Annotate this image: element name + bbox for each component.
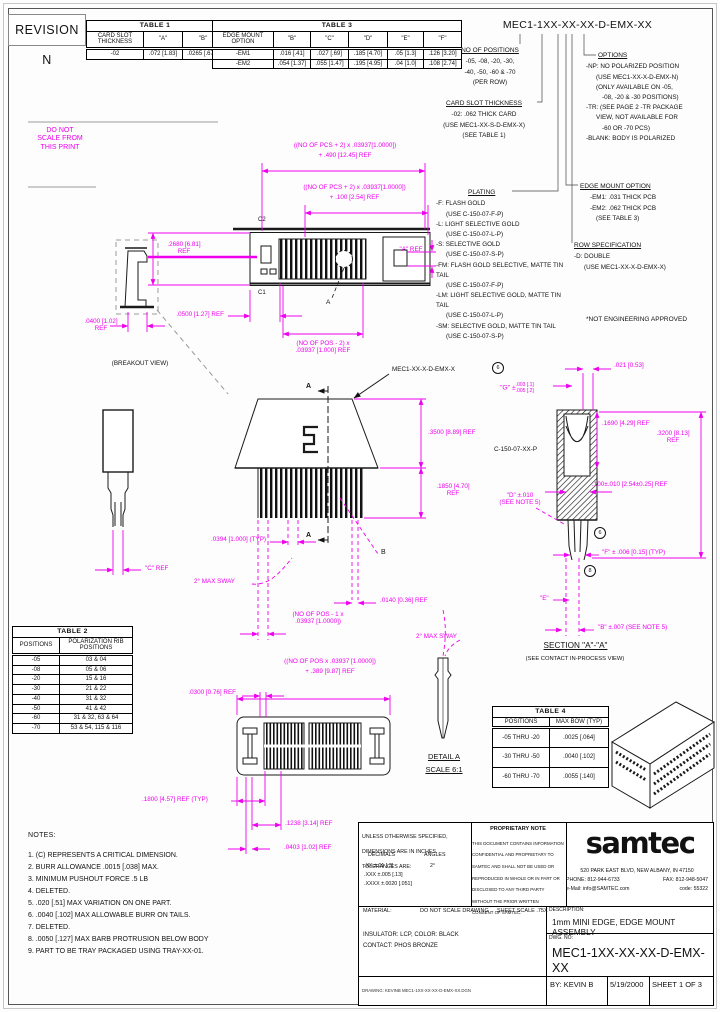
dim-a-ref: "A" REF bbox=[392, 246, 430, 253]
description-label: DESCRIPTION: bbox=[549, 908, 585, 914]
description-value: 1mm MINI EDGE, EDGE MOUNT ASSEMBLY bbox=[552, 918, 710, 937]
do-not-scale-drawing-label: DO NOT SCALE DRAWING bbox=[420, 908, 489, 914]
tolerance-angle: 2° bbox=[430, 863, 435, 869]
dim-top-length2-line2: + .100 [2.54] REF bbox=[272, 194, 437, 201]
samtec-logo: samtec bbox=[575, 826, 705, 860]
notes-block: NOTES: 1. (C) REPRESENTS A CRITICAL DIME… bbox=[28, 830, 263, 958]
note-item: 3. MINIMUM PUSHOUT FORCE .5 LB bbox=[28, 874, 263, 886]
dim-0140: .0140 [0.36] REF bbox=[380, 597, 452, 604]
not-engineering-approved-note: *NOT ENGINEERING APPROVED bbox=[586, 316, 716, 324]
dwg-no-value: MEC1-1XX-XX-XX-D-EMX-XX bbox=[552, 946, 710, 976]
table-2: TABLE 2 POSITIONS POLARIZATION RIB POSIT… bbox=[12, 626, 133, 734]
note-item: 7. DELETED. bbox=[28, 922, 263, 934]
note-balloon-3: 8 bbox=[584, 565, 596, 577]
contact-material: CONTACT: PHOS BRONZE bbox=[363, 943, 438, 950]
insulator-material: INSULATOR: LCP, COLOR: BLACK bbox=[363, 932, 459, 939]
dim-2680: .2680 [6.81] REF bbox=[158, 241, 210, 256]
spec-row-specification: ROW SPECIFICATION -D: DOUBLE (USE MEC1-X… bbox=[574, 241, 714, 273]
section-aa-subtitle: (SEE CONTACT IN-PROCESS VIEW) bbox=[505, 656, 645, 663]
section-arrow-a-top: A bbox=[306, 383, 318, 391]
dim-3200: .3200 [8.13] REF bbox=[646, 430, 700, 445]
drawing-sheet: REVISION N DO NOT SCALE FROM THIS PRINT … bbox=[0, 0, 720, 1012]
dim-position-span-bottom: (NO OF POS - 1 x .03937 [1.0000]) bbox=[272, 611, 364, 626]
contact-part-callout: C-150-07-XX-P bbox=[494, 446, 556, 453]
notes-title: NOTES: bbox=[28, 830, 263, 842]
dim-0500: .0500 [1.27] REF bbox=[140, 311, 224, 318]
part-number-title: MEC1-1XX-XX-XX-D-EMX-XX bbox=[470, 19, 685, 31]
dim-sway-side: 2° MAX SWAY bbox=[194, 578, 256, 585]
note-item: 8. .0050 [.127] MAX BARB PROTRUSION BELO… bbox=[28, 934, 263, 946]
note-item: 1. (C) REPRESENTS A CRITICAL DIMENSION. bbox=[28, 850, 263, 862]
section-arrow-a-bottom: A bbox=[306, 532, 318, 540]
dim-top-length2-line1: ((NO OF PCS + 2) x .03937[1.0000]) bbox=[272, 184, 437, 191]
spec-positions: NO OF POSITIONS -05, -08, -20, -30, -40,… bbox=[440, 46, 540, 88]
title-block-divider bbox=[649, 976, 650, 1005]
dim-g-lower: .005 [.2] bbox=[516, 389, 534, 395]
table-3: TABLE 3 EDGE MOUNT OPTION "B" "C" "D" "E… bbox=[212, 20, 462, 69]
tolerance-xxxx: .XXXX ±.0020 [.051] bbox=[364, 881, 412, 887]
note-item: 4. DELETED. bbox=[28, 886, 263, 898]
dim-1238: .1238 [3.14] REF bbox=[285, 820, 357, 827]
dim-1800: .1800 [4.57] REF (TYP) bbox=[142, 796, 234, 803]
title-block-divider bbox=[607, 976, 608, 1005]
company-code: code: 55322 bbox=[679, 886, 708, 892]
note-item: 6. .0040 [.102] MAX ALLOWABLE BURR ON TA… bbox=[28, 910, 263, 922]
dim-bottom-length-line2: + .389 [9.87] REF bbox=[250, 668, 410, 675]
title-block-divider bbox=[359, 976, 713, 977]
mark-detail-a-balloon: A bbox=[326, 299, 340, 307]
material-label: MATERIAL: bbox=[363, 908, 392, 914]
dim-pitch: .0394 [1.000] (TYP) bbox=[180, 536, 266, 543]
company-address: 520 PARK EAST BLVD, NEW ALBANY, IN 47150 bbox=[566, 868, 708, 874]
table-1: TABLE 1 CARD SLOT THICKNESS "A" "B" -02 … bbox=[86, 20, 224, 60]
decimals-label: DECIMALS bbox=[368, 852, 395, 858]
spec-options: OPTIONS -NP: NO POLARIZED POSITION (USE … bbox=[586, 51, 718, 144]
dim-g: "G" ±.003 [.1].005 [.2] bbox=[500, 376, 554, 394]
angles-label: ANGLES bbox=[424, 852, 446, 858]
mark-c2: C2 bbox=[258, 217, 278, 224]
tolerance-xxx: .XXX ±.005 [.13] bbox=[364, 872, 403, 878]
company-email-code: e-Mail: info@SAMTEC.com code: 55322 bbox=[566, 886, 708, 892]
dim-bottom-length-line1: ((NO OF POS x .03937 [1.0000]) bbox=[250, 658, 410, 665]
tolerance-xx: .XX ±.01 [.3] bbox=[364, 863, 393, 869]
mark-c1: C1 bbox=[258, 290, 278, 297]
dim-c-ref: "C" REF bbox=[145, 565, 187, 572]
dim-e: "E" bbox=[540, 595, 554, 602]
spec-card-slot: CARD SLOT THICKNESS -02: .062 THICK CARD… bbox=[430, 99, 538, 141]
dim-sway-detail: 2° MAX SWAY bbox=[416, 633, 478, 640]
dwg-no-label: DWG. NO: bbox=[549, 936, 573, 942]
company-fax: FAX: 812-948-5047 bbox=[663, 877, 708, 883]
dim-top-length1-line2: + .490 [12.45] REF bbox=[255, 152, 435, 159]
dim-d: "D" ±.010 (SEE NOTE 5) bbox=[492, 492, 548, 507]
note-balloon-2: 6 bbox=[594, 527, 606, 539]
dim-0300: .0300 [0.76] REF bbox=[166, 689, 236, 696]
note-item: 2. BURR ALLOWANCE .0015 [.038] MAX. bbox=[28, 862, 263, 874]
company-phone: PHONE: 812-944-6733 bbox=[566, 877, 620, 883]
company-email: e-Mail: info@SAMTEC.com bbox=[566, 886, 630, 892]
body-part-callout: MEC1-XX-X-D-EMX-X bbox=[392, 366, 484, 373]
dim-b: "B" ±.007 (SEE NOTE 5) bbox=[598, 624, 686, 631]
table-4: TABLE 4 POSITIONS MAX BOW (TYP) -05 THRU… bbox=[492, 706, 609, 788]
detail-a-title: DETAIL A bbox=[414, 753, 474, 762]
drawn-by: BY: KEVIN B bbox=[550, 981, 593, 990]
section-aa-title: SECTION "A"-"A" bbox=[518, 641, 633, 651]
note-balloon-1: 6 bbox=[492, 362, 504, 374]
note-item: 9. PART TO BE TRAY PACKAGED USING TRAY-X… bbox=[28, 946, 263, 958]
dim-0403: .0403 [1.02] REF bbox=[284, 844, 356, 851]
title-block-divider bbox=[566, 823, 567, 906]
spec-plating: PLATING -F: FLASH GOLD (USE C-150-07-F-P… bbox=[436, 188, 568, 342]
detail-a-scale: SCALE 6:1 bbox=[414, 766, 474, 775]
file-note: DRAWING: KEVINB MEC1-1XX-XX-XX-D-EMX-XX.… bbox=[362, 988, 471, 993]
mark-b-leader: B bbox=[381, 549, 393, 557]
dim-f: "F" ± .006 [0.15] (TYP) bbox=[602, 549, 686, 556]
sheet-number: SHEET 1 OF 3 bbox=[652, 981, 702, 990]
company-phone-fax: PHONE: 812-944-6733 FAX: 812-948-5047 bbox=[566, 877, 708, 883]
proprietary-title: PROPRIETARY NOTE bbox=[472, 826, 564, 832]
dim-0400: .0400 [1.02] REF bbox=[78, 318, 124, 333]
do-not-scale-note: DO NOT SCALE FROM THIS PRINT bbox=[22, 127, 98, 152]
dim-1690: .1690 [4.29] REF bbox=[602, 420, 668, 427]
breakout-view-label: (BREAKOUT VIEW) bbox=[98, 360, 182, 367]
dim-1850: .1850 [4.70] REF bbox=[430, 483, 476, 498]
dim-021: .021 [0.53] bbox=[614, 362, 664, 369]
dim-100: .100±.010 [2.54±0.25] REF bbox=[592, 481, 696, 488]
spec-edge-mount: EDGE MOUNT OPTION -EM1: .031 THICK PCB -… bbox=[580, 182, 712, 224]
sheet-scale-label: SHEET SCALE .75X bbox=[497, 908, 548, 914]
revision-box: REVISION N bbox=[8, 14, 86, 46]
dim-3500: .3500 [8.89] REF bbox=[428, 429, 500, 436]
dim-position-span-top: (NO OF POS - 2) x .03937 [1.000] REF bbox=[268, 340, 378, 355]
dim-g-prefix: "G" ± bbox=[500, 385, 516, 392]
drawing-date: 5/19/2000 bbox=[610, 981, 643, 990]
note-item: 5. .020 [.51] MAX VARIATION ON ONE PART. bbox=[28, 898, 263, 910]
dim-top-length1-line1: ((NO OF PCS + 2) x .03937[1.0000]) bbox=[255, 142, 435, 149]
